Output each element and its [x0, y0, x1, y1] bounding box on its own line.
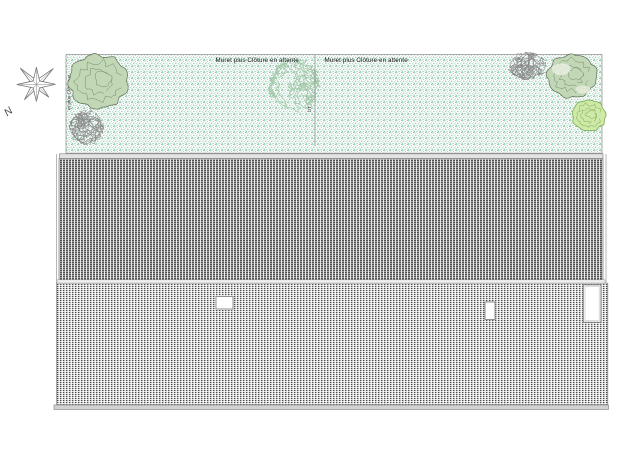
- svg-text:N: N: [2, 105, 16, 119]
- svg-text:DT: DT: [307, 106, 312, 112]
- svg-text:Muret plus Clôture en attente: Muret plus Clôture en attente: [216, 57, 300, 64]
- svg-text:Muret plus Clôture en attente: Muret plus Clôture en attente: [325, 57, 409, 64]
